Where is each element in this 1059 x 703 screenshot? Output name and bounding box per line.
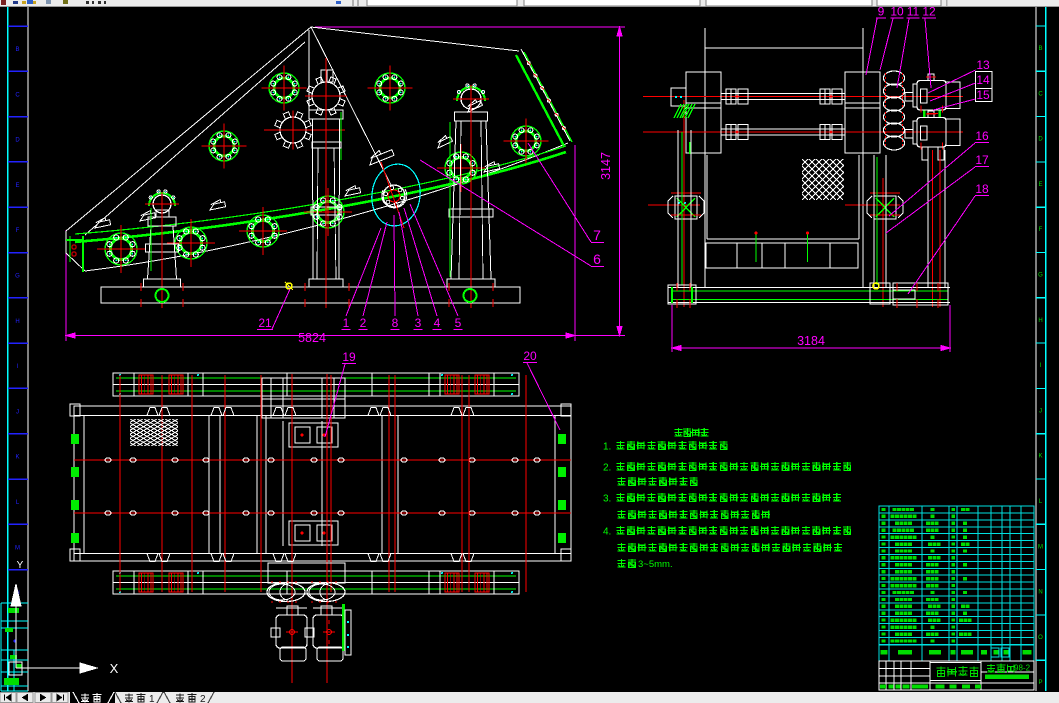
- svg-text:1: 1: [149, 694, 155, 703]
- svg-text:N: N: [1038, 590, 1042, 596]
- svg-text:3: 3: [415, 316, 422, 330]
- svg-text:C: C: [1038, 91, 1043, 97]
- svg-text:10: 10: [890, 5, 904, 19]
- svg-text:11: 11: [907, 5, 920, 19]
- svg-text:M: M: [15, 545, 20, 551]
- svg-text:4.: 4.: [603, 527, 611, 538]
- svg-text:F: F: [16, 228, 20, 234]
- svg-text:5824: 5824: [298, 331, 326, 345]
- svg-text:H: H: [1038, 318, 1042, 324]
- svg-text:F: F: [1039, 227, 1043, 233]
- svg-text:13: 13: [976, 58, 990, 72]
- svg-text:17: 17: [975, 153, 989, 167]
- svg-text:6: 6: [593, 251, 601, 267]
- svg-text:8: 8: [392, 316, 399, 330]
- svg-text:G: G: [15, 274, 20, 280]
- svg-text:12: 12: [922, 5, 936, 19]
- svg-text:P: P: [1038, 680, 1042, 686]
- svg-text:16: 16: [975, 129, 989, 143]
- svg-text:K: K: [1038, 454, 1042, 460]
- svg-text:M: M: [1038, 544, 1043, 550]
- svg-text:9: 9: [878, 5, 885, 19]
- svg-text:2: 2: [360, 316, 367, 330]
- svg-text:G: G: [1038, 273, 1043, 279]
- svg-text:5: 5: [455, 316, 462, 330]
- svg-text:98-2: 98-2: [1014, 664, 1031, 673]
- svg-text:18: 18: [975, 182, 989, 196]
- svg-text:H: H: [15, 319, 19, 325]
- svg-text:4: 4: [434, 316, 441, 330]
- svg-text:7: 7: [593, 227, 601, 243]
- svg-text:Y: Y: [17, 560, 24, 571]
- svg-text:1.: 1.: [603, 442, 611, 453]
- svg-text:3.: 3.: [603, 494, 611, 505]
- svg-text:19: 19: [342, 350, 356, 364]
- svg-text:X: X: [110, 661, 119, 676]
- svg-text:O: O: [1038, 635, 1043, 641]
- svg-text:2: 2: [200, 694, 206, 703]
- svg-text:20: 20: [523, 349, 537, 363]
- svg-text:2.: 2.: [603, 463, 611, 474]
- svg-text:C: C: [15, 92, 20, 98]
- svg-text:D: D: [15, 138, 20, 144]
- svg-text:21: 21: [258, 316, 272, 330]
- svg-text:3184: 3184: [797, 334, 825, 348]
- svg-text:D: D: [1038, 137, 1043, 143]
- svg-text:J: J: [16, 409, 19, 415]
- svg-text:1: 1: [343, 316, 350, 330]
- svg-text:3~5mm.: 3~5mm.: [638, 559, 673, 570]
- svg-text:B: B: [15, 47, 19, 53]
- svg-text:14: 14: [976, 73, 990, 87]
- svg-text:J: J: [1039, 408, 1042, 414]
- svg-text:E: E: [1038, 182, 1042, 188]
- svg-text:3147: 3147: [599, 152, 613, 180]
- svg-text:15: 15: [976, 88, 990, 102]
- svg-text:B: B: [1038, 46, 1042, 52]
- svg-text:K: K: [15, 455, 19, 461]
- svg-text:E: E: [15, 183, 19, 189]
